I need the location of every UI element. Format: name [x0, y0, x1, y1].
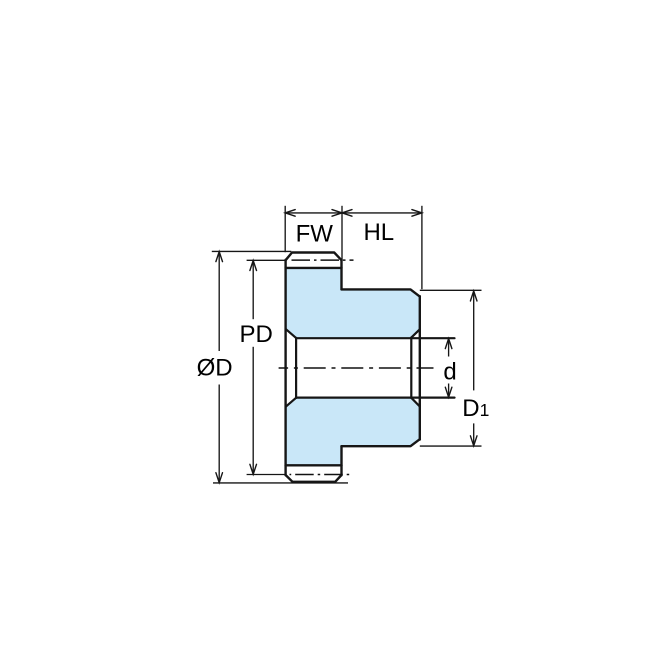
svg-text:d: d: [443, 358, 456, 385]
svg-text:FW: FW: [296, 221, 334, 248]
svg-text:ØD: ØD: [197, 355, 233, 382]
svg-text:D1: D1: [462, 395, 489, 422]
svg-text:PD: PD: [240, 321, 273, 348]
svg-text:HL: HL: [363, 219, 394, 246]
